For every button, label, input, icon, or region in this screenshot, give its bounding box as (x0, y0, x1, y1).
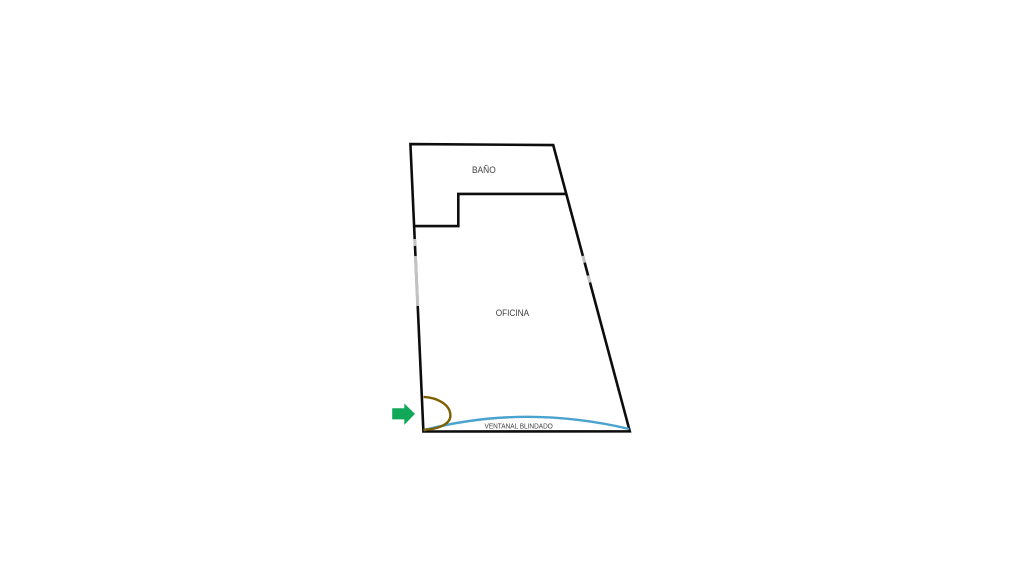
svg-text:OFICINA: OFICINA (496, 308, 530, 319)
svg-text:VENTANAL BLINDADO: VENTANAL BLINDADO (485, 423, 554, 431)
svg-text:BAÑO: BAÑO (472, 165, 496, 176)
